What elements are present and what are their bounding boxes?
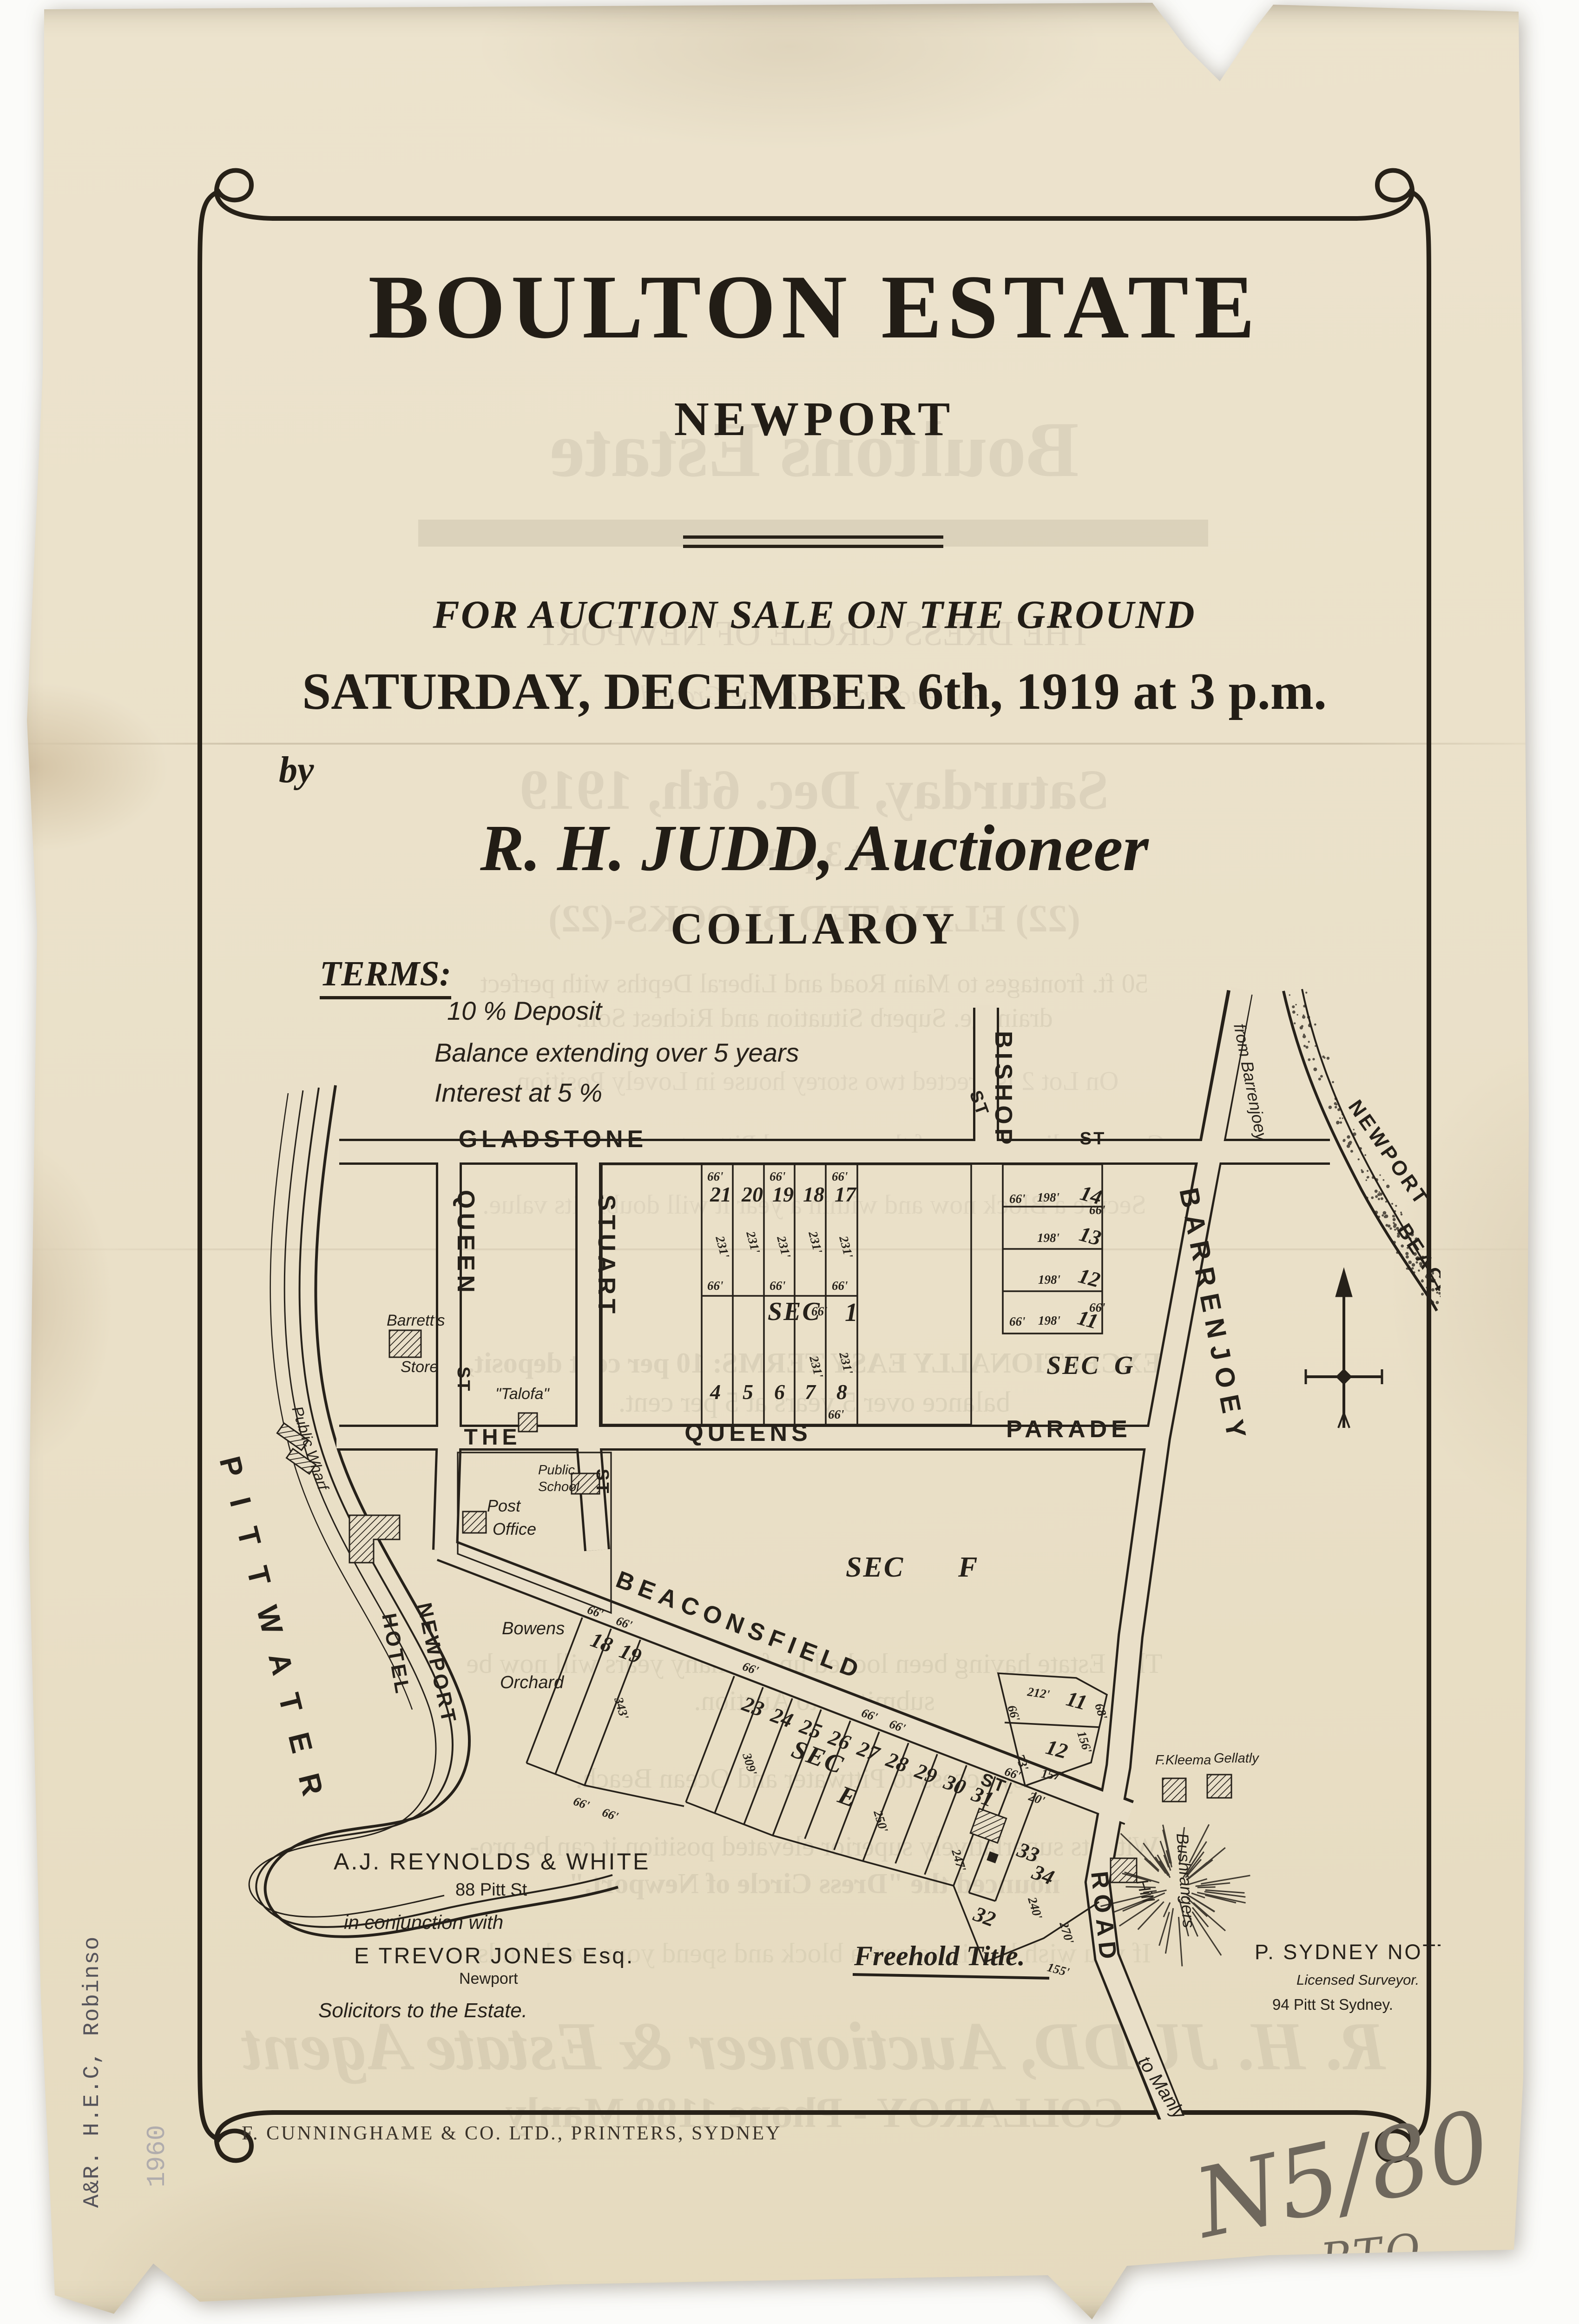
svg-text:24: 24 [768, 1703, 796, 1732]
svg-text:66': 66' [572, 1794, 592, 1812]
section-label-sec1-b: 1 [845, 1298, 859, 1327]
svg-text:66': 66' [832, 1279, 848, 1293]
svg-text:231': 231' [806, 1229, 825, 1255]
svg-text:66': 66' [1009, 1314, 1026, 1328]
svg-text:12: 12 [1043, 1735, 1070, 1763]
svg-text:198': 198' [1038, 1314, 1060, 1327]
svg-text:28: 28 [883, 1747, 912, 1777]
place-label-store: Store [401, 1358, 438, 1376]
auctioneer-line: R. H. JUDD, Auctioneer [200, 810, 1429, 886]
street-label-queen: QUEEN [452, 1190, 479, 1297]
svg-text:198': 198' [1037, 1231, 1059, 1245]
place-label-pittwater: PITTWATER [213, 1453, 335, 1821]
svg-text:240': 240' [1025, 1895, 1045, 1921]
svg-text:66': 66' [832, 1169, 848, 1183]
svg-text:155': 155' [1046, 1960, 1071, 1979]
svg-text:32: 32 [970, 1901, 999, 1931]
street-label-the: THE [464, 1425, 521, 1450]
svg-text:11: 11 [1064, 1686, 1089, 1715]
svg-text:6: 6 [774, 1380, 785, 1404]
place-label-orchard: Orchard [500, 1673, 565, 1692]
poster-title: BOULTON ESTATE [200, 255, 1429, 359]
section-label-secg-a: SEC [1046, 1351, 1100, 1380]
svg-text:8: 8 [836, 1380, 847, 1404]
page: Boultons Estate THE DRESS CIRCLE OF NEWP… [0, 0, 1579, 2324]
surveyor-role: Licensed Surveyor. [1296, 1972, 1419, 1988]
solicitors-conjunction: in conjunction with [344, 1911, 503, 1933]
svg-text:156': 156' [1074, 1730, 1094, 1755]
svg-text:19: 19 [617, 1638, 645, 1668]
printer-imprint: F. CUNNINGHAME & CO. LTD., PRINTERS, SYD… [242, 2122, 782, 2145]
svg-text:13: 13 [1077, 1221, 1104, 1250]
solicitors-role: Solicitors to the Estate. [318, 1999, 527, 2022]
svg-text:231': 231' [836, 1350, 856, 1376]
street-label-queens: QUEENS [684, 1419, 812, 1446]
divider-rule [683, 545, 943, 548]
library-stamp: A&R. H.E.C, Robinso [80, 1936, 105, 2208]
auctioneer-place: COLLAROY [200, 903, 1429, 954]
solicitors-partner: E TREVOR JONES Esq. [354, 1944, 634, 1968]
street-label-queen-st: ST [454, 1367, 473, 1393]
svg-text:66': 66' [828, 1407, 844, 1421]
svg-text:309': 309' [740, 1751, 760, 1777]
tenure-note: Freehold Title. [854, 1941, 1025, 1971]
svg-text:231': 231' [836, 1234, 856, 1260]
place-label-office: Office [493, 1519, 536, 1538]
svg-text:30: 30 [941, 1769, 969, 1799]
svg-text:19: 19 [772, 1182, 794, 1206]
svg-text:66': 66' [600, 1805, 620, 1823]
section-label-sece-b: E [834, 1780, 862, 1814]
solicitors-firm: A.J. REYNOLDS & WHITE [334, 1849, 650, 1875]
svg-text:12: 12 [1076, 1263, 1103, 1292]
svg-text:66': 66' [707, 1169, 724, 1183]
svg-text:270': 270' [1057, 1920, 1077, 1946]
secg-dimensions: 198' 198' 198' 198' 66' 66' 66' 66' [1009, 1190, 1105, 1328]
svg-text:17: 17 [835, 1182, 857, 1206]
section-label-secf-a: SEC [846, 1552, 904, 1583]
street-label-stuart-st: ST [592, 1469, 612, 1495]
paper-wrap: Boultons Estate THE DRESS CIRCLE OF NEWP… [0, 0, 1579, 2324]
estate-map: GLADSTONE ST QUEEN ST STUART ST BISHOP S… [177, 953, 1441, 2119]
svg-text:231': 231' [774, 1234, 794, 1260]
place-label-bowens: Bowens [502, 1619, 565, 1638]
place-label-talofa: "Talofa" [495, 1385, 550, 1403]
street-label-road: ROAD [1086, 1870, 1122, 1966]
street-label-gladstone: GLADSTONE [459, 1126, 648, 1153]
poster-paper: Boultons Estate THE DRESS CIRCLE OF NEWP… [0, 0, 1579, 2324]
svg-text:250': 250' [871, 1808, 891, 1834]
svg-text:247': 247' [949, 1847, 969, 1873]
sale-line: FOR AUCTION SALE ON THE GROUND [200, 591, 1429, 638]
street-label-bishop: BISHOP [990, 1031, 1017, 1149]
svg-text:66': 66' [1005, 1703, 1023, 1723]
street-label-gladstone-st: ST [1080, 1129, 1106, 1149]
section-label-secf-b: F [958, 1552, 979, 1583]
north-compass-icon [1306, 1268, 1382, 1428]
svg-text:66': 66' [707, 1279, 724, 1293]
svg-text:212': 212' [1026, 1684, 1051, 1702]
svg-text:66': 66' [1089, 1301, 1105, 1314]
place-label-barretts: Barrett's [387, 1312, 445, 1329]
place-label-newport-beach-1: NEWPORT [1344, 1096, 1434, 1211]
stamp-number: 1960 [142, 2125, 172, 2187]
svg-text:66': 66' [770, 1279, 786, 1293]
svg-text:18: 18 [803, 1182, 824, 1206]
sec1-lot-numbers: 21 20 19 18 17 4 5 6 7 8 [710, 1182, 857, 1404]
place-label-public-wharf: Public Wharf [289, 1404, 332, 1494]
street-label-parade: PARADE [1006, 1416, 1132, 1443]
svg-text:66': 66' [1009, 1192, 1026, 1206]
surveyor-address: 94 Pitt St Sydney. [1272, 1996, 1393, 2013]
poster-subtitle: NEWPORT [200, 391, 1429, 447]
svg-text:66': 66' [1089, 1203, 1105, 1217]
svg-text:4: 4 [710, 1380, 721, 1404]
section-label-secg-b: G [1114, 1351, 1134, 1380]
divider-rule [683, 535, 943, 539]
place-label-public-school-2: School [538, 1479, 580, 1494]
svg-text:66': 66' [770, 1169, 786, 1183]
place-label-kleema: F.Kleema [1155, 1753, 1211, 1768]
svg-text:231': 231' [713, 1234, 732, 1260]
place-label-newport-beach-2: BEACH [1393, 1220, 1441, 1305]
place-label-hotel-newport: NEWPORT [413, 1601, 461, 1727]
svg-text:198': 198' [1038, 1273, 1060, 1287]
svg-text:343': 343' [612, 1695, 632, 1721]
svg-text:21: 21 [710, 1182, 731, 1206]
svg-text:29: 29 [912, 1758, 941, 1788]
street-label-stuart: STUART [593, 1195, 620, 1318]
tenure-underline [853, 1974, 1049, 1978]
svg-text:198': 198' [1037, 1190, 1059, 1204]
svg-text:27: 27 [854, 1736, 883, 1766]
svg-text:68': 68' [1092, 1702, 1110, 1721]
small-building [987, 1851, 999, 1863]
place-label-gellatly: Gellatly [1214, 1751, 1259, 1766]
surveyor-name: P. SYDNEY NOTT [1255, 1940, 1441, 1964]
svg-text:18: 18 [588, 1627, 616, 1657]
svg-text:231': 231' [807, 1354, 826, 1380]
svg-text:23: 23 [739, 1691, 768, 1721]
place-label-public-school-1: Public [538, 1463, 575, 1478]
svg-text:231': 231' [743, 1229, 763, 1255]
place-label-bushrangers: Bushrangers [1173, 1833, 1198, 1928]
solicitors-firm-address: 88 Pitt St [455, 1880, 527, 1900]
date-line: SATURDAY, DECEMBER 6th, 1919 at 3 p.m. [200, 662, 1429, 722]
svg-text:66': 66' [811, 1304, 828, 1318]
svg-text:5: 5 [743, 1380, 753, 1404]
solicitors-partner-place: Newport [459, 1970, 518, 1987]
by-word: by [279, 749, 314, 792]
svg-text:20: 20 [741, 1182, 763, 1206]
handwritten-pto: PTO [1318, 2224, 1427, 2284]
place-label-post: Post [487, 1496, 521, 1515]
svg-text:7: 7 [805, 1380, 816, 1404]
